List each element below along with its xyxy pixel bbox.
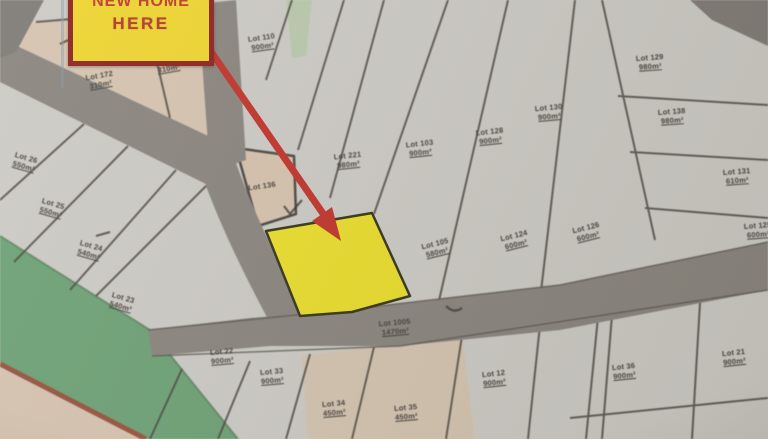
subdivision-map-photo: Lot 172310m²aLot 118310m²Lot 110900m²Lot… — [0, 0, 768, 439]
callout-line2: HERE — [112, 14, 169, 34]
photo-fold-mark — [61, 0, 64, 88]
callout-box: NEW HOME HERE — [68, 0, 214, 66]
callout-line1: NEW HOME — [92, 0, 190, 11]
pointer-arrow-shaft — [196, 30, 324, 215]
highlighted-lot — [266, 213, 410, 316]
